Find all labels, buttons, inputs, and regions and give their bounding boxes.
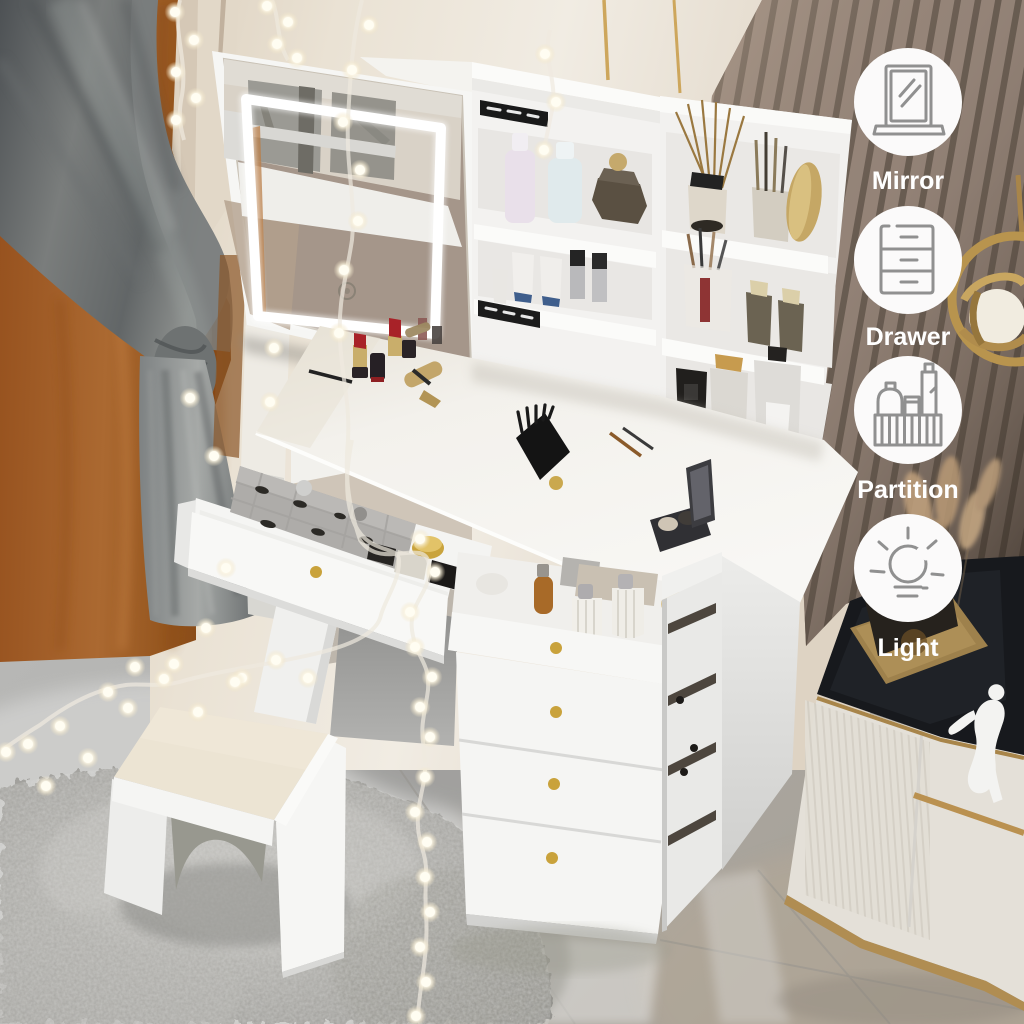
svg-text:Drawer: Drawer [866, 323, 951, 351]
svg-text:Light: Light [877, 634, 939, 662]
svg-text:Mirror: Mirror [872, 167, 945, 195]
svg-text:Partition: Partition [857, 476, 958, 504]
